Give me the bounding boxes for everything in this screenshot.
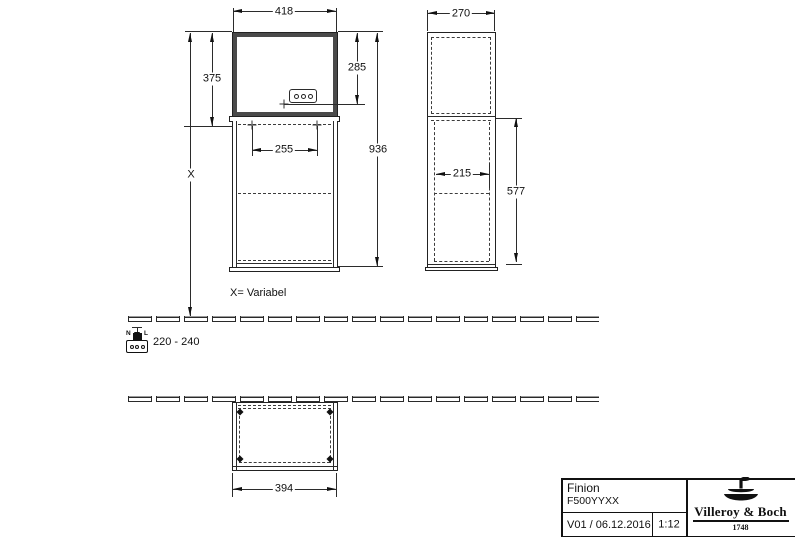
- extension-line: [338, 266, 383, 267]
- extension-line: [489, 163, 490, 188]
- dimension-arrow: [355, 95, 359, 104]
- dim-label-plan-width: 394: [273, 483, 295, 496]
- dim-label-outlet-height: 285: [346, 62, 368, 75]
- dimension-arrow: [480, 172, 489, 176]
- side-base-lip: [425, 267, 498, 271]
- outlet-center-cross: [280, 100, 289, 109]
- dimension-arrow: [327, 9, 336, 13]
- dim-label-side-width: 270: [450, 8, 472, 21]
- terminal-l-label: L: [144, 330, 148, 337]
- brand-year: 1748: [687, 523, 794, 532]
- outlet-socket-dot: [308, 94, 313, 99]
- extension-line: [338, 31, 383, 32]
- technical-drawing-canvas: 418 375 X 285 936 255: [0, 0, 795, 537]
- dimension-arrow: [233, 9, 242, 13]
- terminal-dot: [141, 345, 145, 349]
- extension-line: [184, 126, 233, 127]
- dimension-arrow: [375, 33, 379, 42]
- side-door-hidden-outline: [431, 37, 491, 114]
- terminal-box-icon: [126, 340, 148, 353]
- dim-label-variable-height: X: [185, 169, 196, 182]
- extension-line: [506, 264, 522, 265]
- wall-section-line-upper: [128, 316, 599, 322]
- dim-label-total-height: 936: [367, 144, 389, 157]
- plan-mounting-rail-hidden-line: [238, 405, 331, 406]
- dimension-arrow: [355, 33, 359, 42]
- front-lower-inner-wall-right: [333, 121, 334, 267]
- extension-line: [185, 31, 232, 32]
- plan-mounting-rail-hidden-line: [238, 408, 331, 409]
- power-outlet-icon: [289, 89, 317, 103]
- dimension-arrow: [210, 117, 214, 126]
- terminal-n-label: N: [126, 330, 131, 337]
- plan-hidden-line-bottom: [239, 462, 330, 463]
- title-block-row-divider: [561, 512, 687, 513]
- side-hidden-bottom-line: [434, 261, 489, 262]
- outlet-reference-line: [284, 104, 365, 105]
- brand-underline: [693, 520, 789, 522]
- side-hidden-shelf-line: [434, 193, 489, 194]
- side-hidden-line-right: [489, 122, 490, 261]
- side-bottom-inner-line: [428, 264, 495, 265]
- side-hidden-line-left: [434, 122, 435, 261]
- plan-cabinet-outline: [232, 402, 338, 471]
- outlet-socket-dot: [294, 94, 299, 99]
- article-number: F500YYXX: [567, 495, 619, 507]
- front-lower-inner-wall-left: [236, 121, 237, 267]
- side-divider-hidden-line: [431, 120, 491, 121]
- dimension-arrow: [210, 33, 214, 42]
- brand-wordmark: Villeroy & Boch: [687, 504, 794, 520]
- front-bottom-inner-line: [237, 263, 332, 264]
- extension-line: [317, 126, 318, 156]
- dim-label-front-upper-height: 375: [201, 73, 223, 86]
- dimension-arrow: [308, 148, 317, 152]
- outlet-socket-dot: [301, 94, 306, 99]
- dimension-arrow: [514, 253, 518, 262]
- villeroy-boch-logo-icon: [717, 477, 765, 503]
- dimension-arrow: [327, 487, 336, 491]
- extension-line: [336, 473, 337, 497]
- revision-date: V01 / 06.12.2016: [567, 519, 651, 532]
- dimension-arrow: [514, 118, 518, 127]
- terminal-connector-icon: [133, 333, 142, 340]
- dimension-arrow: [188, 33, 192, 42]
- dim-label-front-width: 418: [273, 6, 295, 19]
- dimension-arrow: [188, 307, 192, 316]
- dimension-arrow: [375, 257, 379, 266]
- drawing-scale: 1:12: [656, 519, 681, 532]
- plan-bottom-inner-line: [233, 466, 337, 467]
- dim-label-side-lower-height: 577: [505, 186, 527, 199]
- dimension-arrow: [486, 11, 495, 15]
- product-name: Finion: [567, 482, 600, 496]
- front-hidden-bottom-line: [238, 260, 331, 261]
- dimension-arrow: [252, 148, 261, 152]
- front-base-lip: [229, 267, 340, 272]
- dim-label-front-inner-width: 255: [273, 144, 295, 157]
- extension-line: [232, 473, 233, 497]
- wall-section-line-lower: [128, 396, 599, 402]
- front-hidden-shelf-line: [238, 193, 331, 194]
- side-divider-line: [427, 116, 496, 117]
- terminal-dot: [130, 345, 134, 349]
- dimension-arrow: [233, 487, 242, 491]
- dimension-arrow: [436, 172, 445, 176]
- voltage-range-label: 220 - 240: [153, 336, 199, 349]
- dim-label-side-inner-width: 215: [451, 168, 473, 181]
- terminal-dot: [135, 345, 139, 349]
- title-block-scale-divider: [652, 512, 653, 537]
- dimension-arrow: [428, 11, 437, 15]
- extension-line: [496, 118, 522, 119]
- variable-note-label: X= Variabel: [230, 287, 286, 300]
